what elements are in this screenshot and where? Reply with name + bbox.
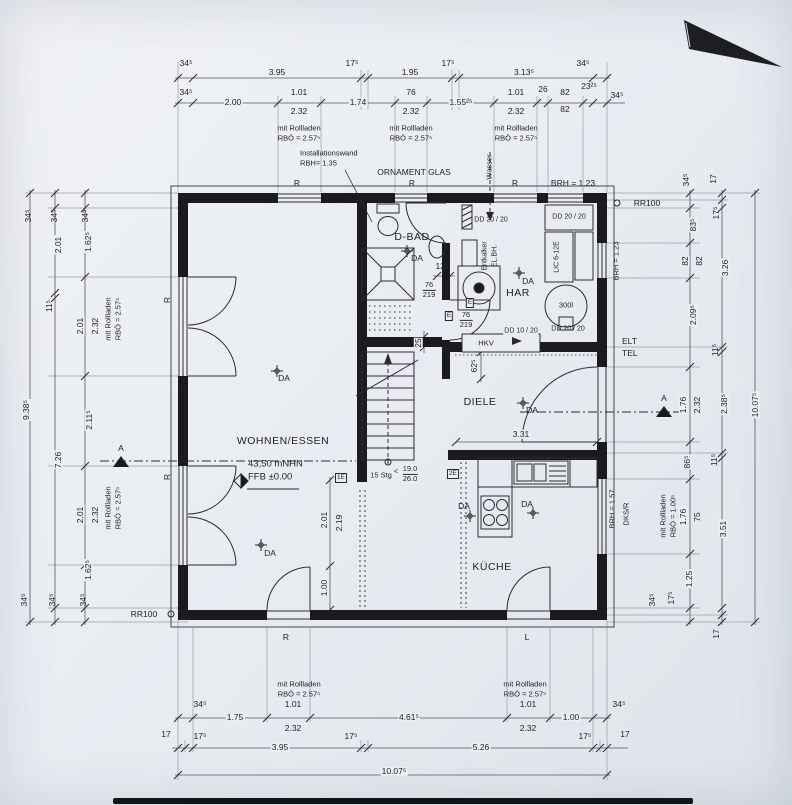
dim: 1.01: [508, 88, 525, 97]
rollladen-note: mit Rollladen: [503, 680, 546, 688]
dim: 2.32: [403, 107, 420, 116]
dim: 3.26: [721, 259, 730, 278]
room-label-bath: D-BAD: [394, 232, 429, 243]
dim: 34⁵: [611, 91, 624, 100]
dks-note: DKS/R: [622, 503, 630, 526]
rollladen-note: RBÖ = 2.57⁵: [114, 298, 122, 341]
dim: 34⁵: [613, 700, 626, 709]
dim: 34⁵: [79, 594, 88, 607]
door-width: 76: [462, 311, 470, 320]
da-label: DA: [526, 406, 538, 415]
rr100-circle-top: [614, 200, 620, 206]
bottom-scan-strip: [113, 798, 693, 804]
boiler-marker-e: E: [466, 298, 474, 308]
dim: 1.76: [679, 396, 688, 415]
dim: 34⁵: [48, 594, 57, 607]
dim: 2.32: [508, 107, 525, 116]
room-label-living: WOHNEN/ESSEN: [237, 436, 329, 447]
section-label: A: [661, 394, 667, 403]
dim: 4.61⁵: [398, 713, 420, 722]
shutter-marker: L: [525, 633, 530, 642]
exterior-walls: [178, 193, 607, 620]
rollladen-marker: R: [294, 179, 300, 188]
dim: 3.13⁵: [513, 68, 535, 77]
dim: 2.38⁵: [720, 393, 729, 415]
dotted-partitions: [360, 462, 466, 608]
dim: 26: [538, 85, 547, 94]
dim: 11⁵: [711, 344, 720, 356]
door-size-tag: 76 219: [460, 311, 473, 329]
dim: 2.09⁵: [689, 304, 698, 326]
dim: 3.95: [271, 743, 290, 752]
rollladen-note: RBÖ = 2.57⁵: [278, 134, 321, 142]
rr100-label: RR100: [634, 199, 660, 208]
dim: 34⁵: [577, 59, 590, 68]
da-label: DA: [411, 254, 423, 263]
dim: 2.01: [54, 236, 63, 255]
dim: 2.32: [291, 107, 308, 116]
da-label: DA: [458, 502, 470, 511]
installationswand-note: Installationswand: [300, 149, 358, 157]
dim: 12⁵: [436, 262, 449, 271]
installationswand-height: RBH= 1.35: [300, 159, 337, 167]
dim: 17⁵: [712, 207, 721, 220]
dimension-ticks: [26, 74, 759, 779]
door-size-tag: 76 219: [423, 281, 436, 299]
rollladen-note: mit Rollladen: [277, 680, 320, 688]
dim: 1.01: [285, 700, 302, 709]
dim: 1.62⁵: [84, 559, 93, 581]
dim: 17: [620, 730, 629, 739]
dim: 2.32: [91, 507, 100, 524]
dim: 34⁵: [20, 594, 29, 607]
stair-ratio: 19.0 26.0: [403, 465, 418, 483]
level-datum: 43,50 mNHN: [248, 459, 303, 469]
rollladen-note: mit Rollladen: [494, 124, 537, 132]
dim: 2.01: [76, 506, 85, 525]
level-ffb: FFB ±0.00: [248, 472, 292, 482]
dim: 82: [695, 256, 704, 265]
dim: 3.51: [719, 520, 728, 539]
dim: 25: [414, 337, 423, 348]
dim: 2.32: [285, 724, 302, 733]
rollladen-marker: R: [163, 474, 172, 480]
dd-label: DD 10 / 20: [503, 328, 538, 335]
da-label: DA: [264, 549, 276, 558]
rollladen-note: RBÖ = 1.00⁵: [669, 495, 677, 538]
dim: 17⁵: [579, 732, 592, 741]
door-width: 76: [425, 281, 433, 290]
dim: 3.95: [268, 68, 287, 77]
dim: 11⁵: [710, 454, 719, 466]
dim: 10.07⁵: [751, 392, 760, 419]
dim: 2.32: [91, 318, 100, 335]
door-height: 219: [460, 320, 473, 330]
dim: 1.75: [226, 713, 245, 722]
dim: 83⁵: [689, 218, 698, 233]
dim: 34⁵: [180, 59, 193, 68]
dim: 17⁵: [345, 732, 358, 741]
stair-run: 26.0: [403, 474, 418, 484]
dim: 10.07⁵: [381, 767, 408, 776]
door-height: 219: [423, 290, 436, 300]
tel-note: TEL: [622, 349, 638, 358]
dim: 62⁵: [470, 359, 479, 374]
wasser-note: Wasser: [485, 154, 493, 179]
dim: 2.11⁵: [85, 409, 94, 430]
room-label-utility: HAR: [506, 288, 530, 299]
dd-label: DD 20 / 20: [474, 217, 507, 224]
brh-note: BRH = 1.57: [608, 490, 616, 529]
dim: 3.31: [512, 430, 531, 439]
dim: 17: [709, 174, 718, 183]
rollladen-note: RBÖ = 2.57⁵: [495, 134, 538, 142]
rollladen-marker: R: [512, 179, 518, 188]
rollladen-note: mit Rollladen: [104, 486, 112, 529]
da-label: DA: [521, 500, 533, 509]
exterior-contour: [171, 186, 614, 627]
dim: 17⁵: [194, 732, 207, 741]
floor-plan-sheet: 34⁵ 3.95 17⁵ 1.95 17⁵ 3.13⁵ 34⁵ 34⁵ 2.00…: [0, 0, 792, 805]
brh-note: BRH = 1.23: [612, 242, 620, 281]
room-label-hall: DIELE: [464, 397, 497, 408]
dim: 5.26: [472, 743, 491, 752]
dim: 34⁵: [682, 174, 691, 187]
rollladen-marker: R: [409, 179, 415, 188]
floor-plan-drawing: [0, 0, 792, 805]
kitchen-fixtures: [478, 458, 597, 537]
marker-1e: 1E: [335, 473, 347, 483]
stair-lt: <: [394, 467, 398, 475]
dim: 2.32: [520, 724, 537, 733]
section-label: A: [118, 444, 124, 453]
dim: 34⁵: [24, 210, 33, 223]
dim: 2.19: [335, 515, 344, 532]
dim: 1.01: [520, 700, 537, 709]
room-label-kitchen: KÜCHE: [472, 562, 511, 573]
dd-label: DD 20 / 20: [552, 214, 585, 221]
dim: 82: [681, 255, 690, 266]
dim: 1.76: [679, 508, 688, 527]
dd-label: DD 20 / 20: [551, 326, 584, 333]
dim: 1.00: [320, 579, 329, 598]
dim: 23²⁵: [581, 82, 597, 91]
stair-direction-arrow: [384, 353, 392, 364]
rollladen-marker: R: [283, 633, 289, 642]
dim: 34⁵: [194, 700, 207, 709]
dim: 17⁵: [442, 59, 455, 68]
rollladen-note: RBÖ = 2.57⁵: [504, 690, 547, 698]
rollladen-note: mit Rollladen: [104, 297, 112, 340]
dim: 34⁵: [648, 594, 657, 607]
corner-wedge: [684, 20, 782, 67]
rollladen-note: mit Rollladen: [389, 124, 432, 132]
dim: 1.74: [349, 98, 368, 107]
dim: 1.25: [685, 570, 694, 589]
dim: 1.01: [291, 88, 308, 97]
rollladen-marker: R: [163, 297, 172, 303]
dim: 34⁵: [180, 88, 193, 97]
marker-2e: 2E: [447, 469, 459, 479]
rr100-label: RR100: [131, 610, 157, 619]
dim: 82: [560, 88, 569, 97]
da-label: DA: [278, 374, 290, 383]
stair-rise: 19.0: [403, 465, 418, 474]
dim: 2.01: [76, 317, 85, 336]
da-label: DA: [522, 277, 534, 286]
dim: 17: [712, 629, 721, 638]
windows: [179, 194, 606, 619]
elt-note: ELT: [622, 337, 637, 346]
dim: 82: [560, 105, 569, 114]
dim: 2.32: [693, 397, 702, 414]
brh-note: BRH = 1.23: [551, 179, 595, 188]
tank-label: 300l: [559, 301, 573, 309]
dim: 9.38⁵: [22, 399, 31, 421]
dim: 17: [161, 730, 170, 739]
rollladen-note: RBÖ = 2.57⁵: [278, 690, 321, 698]
dim: 2.01: [320, 511, 329, 530]
dim: 34⁵: [81, 210, 90, 223]
dim: 2.00: [224, 98, 243, 107]
dim: 1.00: [562, 713, 581, 722]
el-bh-label: EL.BH.: [492, 245, 499, 267]
dim: 75: [693, 512, 702, 521]
dim: 1.55²⁵: [449, 98, 474, 107]
entkalker-label: Entkalker: [482, 241, 489, 270]
section-arrow-left: [113, 456, 129, 467]
dim: 7.26: [54, 451, 63, 470]
dim: 76: [406, 88, 415, 97]
rollladen-note: mit Rollladen: [277, 124, 320, 132]
dim: 34⁵: [50, 210, 59, 223]
dim: 11⁵: [45, 300, 54, 312]
stair-count: 15 Stg: [369, 471, 393, 479]
dimension-lines: [30, 78, 755, 775]
dim: 17⁵: [667, 592, 676, 605]
door-marker-e: E: [445, 311, 453, 321]
ornament-glas-note: ORNAMENT GLAS: [377, 168, 451, 177]
rollladen-note: mit Rollladen: [659, 494, 667, 537]
rollladen-note: RBÖ = 2.57⁵: [114, 487, 122, 530]
dim: 17⁵: [346, 59, 359, 68]
rollladen-note: RBÖ = 2.57⁵: [390, 134, 433, 142]
lic-label: LIC 6-12E: [554, 241, 561, 273]
dim: 1.62⁵: [84, 231, 93, 253]
dim: 1.95: [401, 68, 420, 77]
dim: 86⁵: [683, 455, 692, 470]
hkv-label: HKV: [478, 339, 493, 347]
